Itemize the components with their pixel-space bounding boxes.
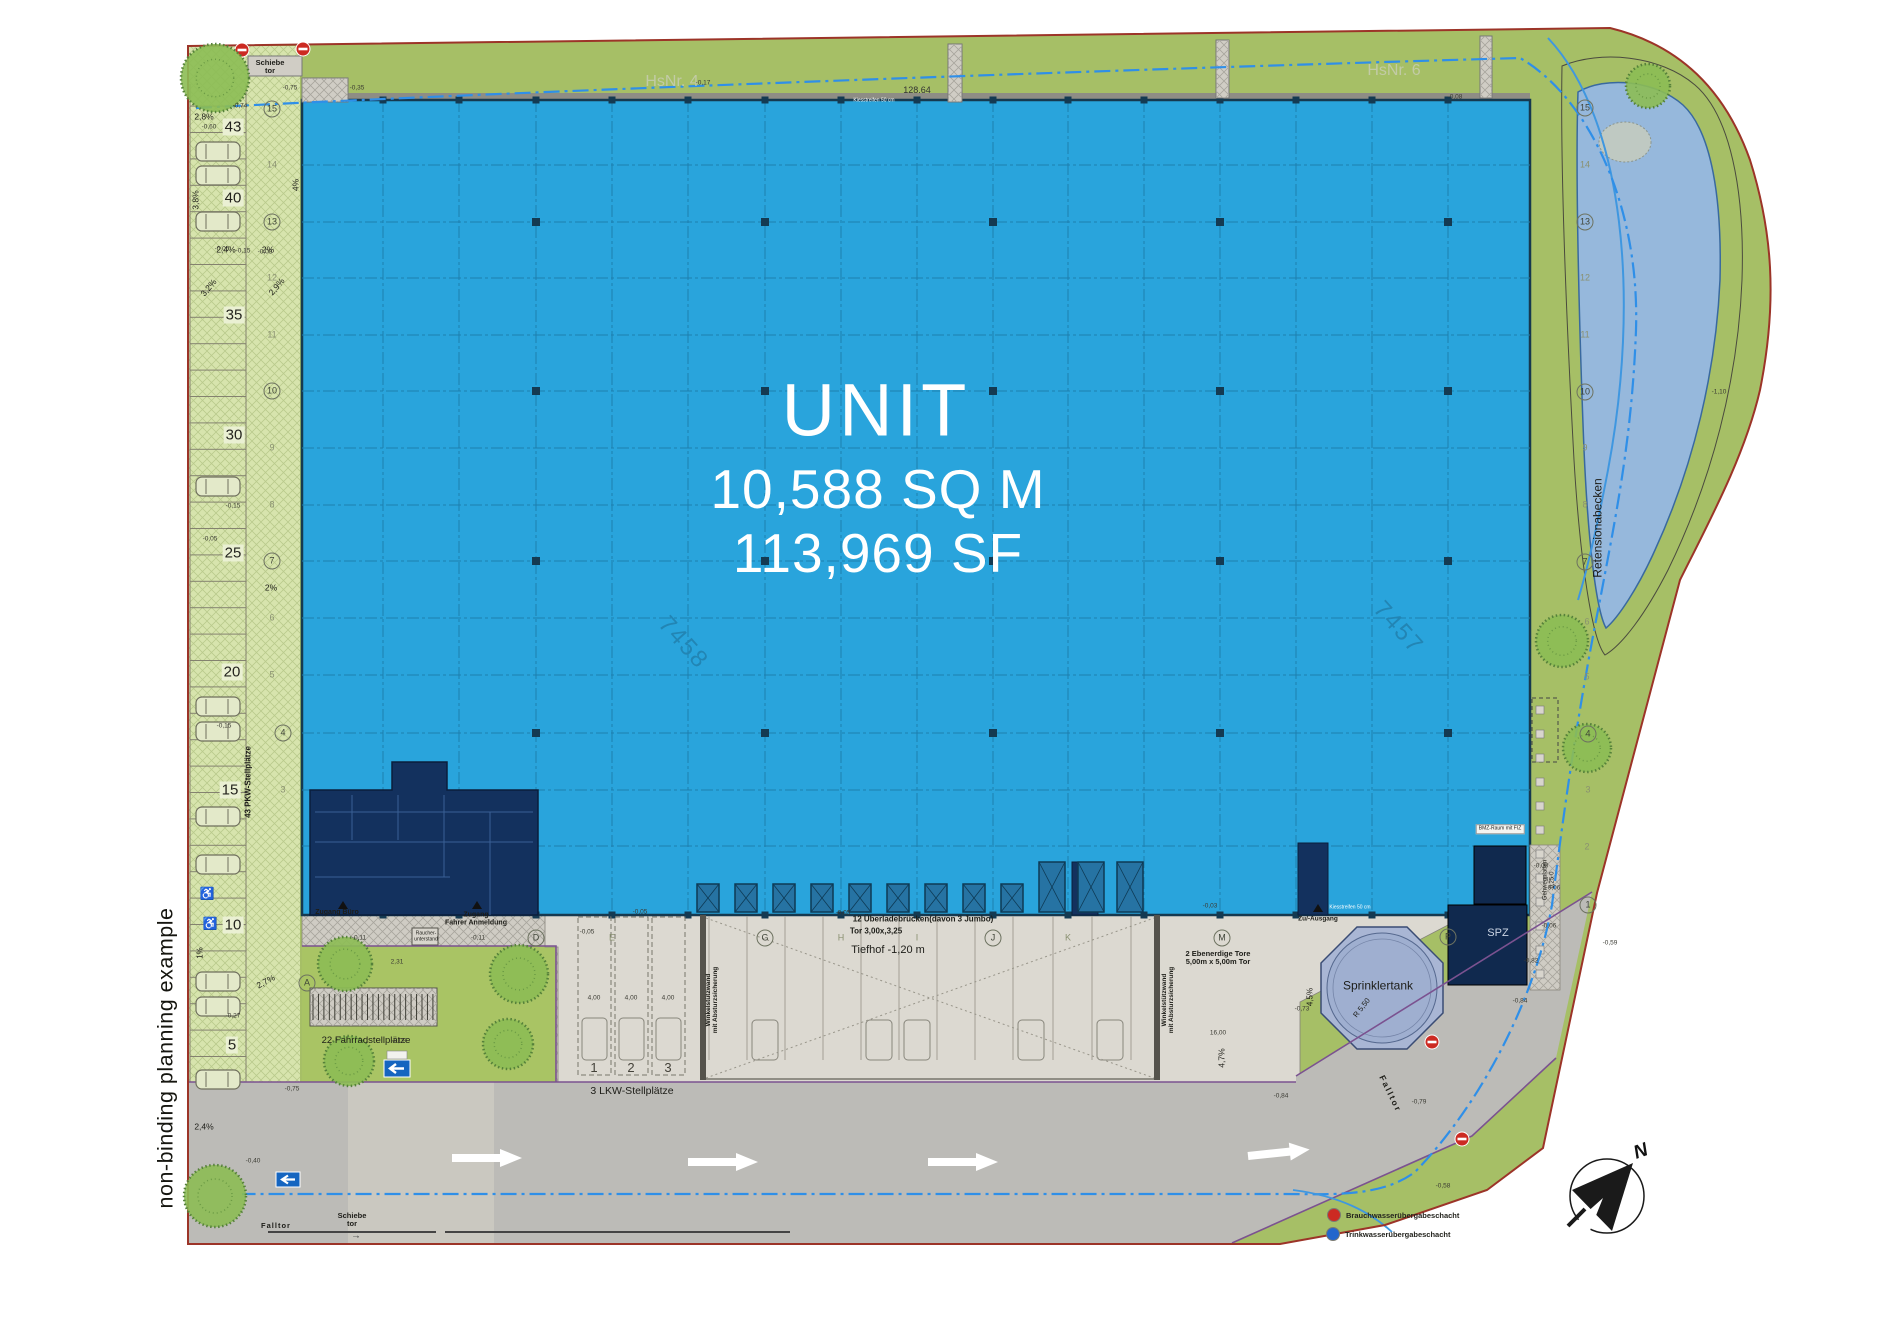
retaining-wall-west [700,915,706,1080]
legend-item-trinkwasser: Trinkwasserübergabeschacht [1326,1227,1450,1241]
legend-item-brauchwasser: Brauchwasserübergabeschacht [1327,1208,1459,1222]
retaining-wall-east [1154,915,1160,1080]
sprinkler-tank [1321,927,1443,1049]
retention-basin-water [1577,82,1720,628]
unit-title: UNIT [782,368,971,453]
unit-area-sqm: 10,588 SQ M [710,457,1045,521]
unit-area-sf: 113,969 SF [733,521,1023,585]
smoking-shelter [412,928,438,945]
site-plan-drawing [0,0,1901,1330]
brauchwasser-dot-icon [1327,1208,1341,1222]
tech-room-center [1298,843,1328,915]
north-compass [1568,1159,1644,1233]
disclaimer-note: non-binding planning example [154,908,179,1209]
bmz-room [1474,846,1526,904]
site-plan-page: { "plan": { "unit_label": "UNIT", "area_… [0,0,1901,1330]
parking-stall-lines [190,84,246,1234]
legend-label: Trinkwasserübergabeschacht [1345,1230,1450,1239]
trinkwasser-dot-icon [1326,1227,1340,1241]
entry-drive [348,1082,494,1243]
spz-room [1448,905,1527,985]
legend-label: Brauchwasserübergabeschacht [1346,1211,1459,1220]
site-plan: HsNr. 4HsNr. 6Schiebe torSchiebe tor→Fal… [0,0,1901,1330]
